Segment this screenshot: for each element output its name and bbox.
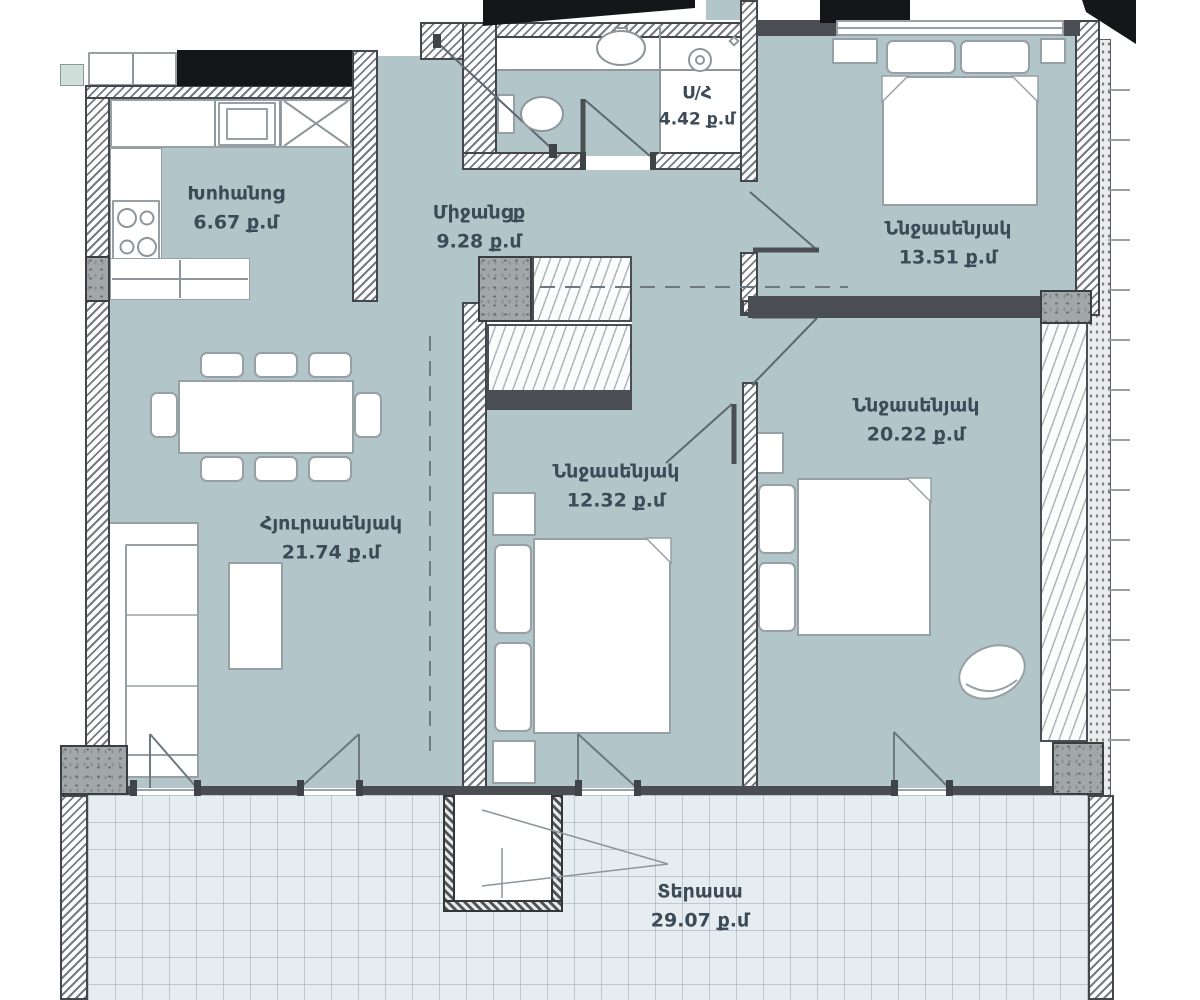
dining-chair <box>150 392 178 438</box>
room-label-terrace: Տերասա 29.07 ք.մ <box>651 878 749 935</box>
window-behind-bed <box>836 20 1064 36</box>
wall <box>462 302 487 788</box>
wall <box>462 152 583 170</box>
dining-chair <box>200 456 244 482</box>
concrete-column <box>85 256 110 302</box>
wall <box>740 0 758 182</box>
kitchen-stove <box>112 200 160 262</box>
room-area: 13.51 ք.մ <box>884 243 1011 272</box>
kitchen-counter-bottom <box>110 258 250 300</box>
room-name: Ննջասենյակ <box>552 458 679 487</box>
nightstand <box>1040 38 1066 64</box>
planter-wall <box>443 900 563 912</box>
kitchen-sink-inner <box>226 108 268 140</box>
room-name: Ննջասենյակ <box>852 392 979 421</box>
room-name: Խոհանոց <box>187 180 284 209</box>
nightstand <box>832 38 878 64</box>
bed-pillow <box>758 484 796 554</box>
facade-tick-marks <box>1108 90 1130 740</box>
room-name: Ս/Հ <box>659 82 735 108</box>
dining-chair <box>254 352 298 378</box>
wardrobe-band <box>1040 322 1088 742</box>
wall <box>60 795 88 1000</box>
wall <box>462 22 497 170</box>
wall <box>748 296 1048 318</box>
wall <box>487 392 632 410</box>
wall <box>177 50 352 86</box>
terrace-floor <box>88 795 1092 1000</box>
wall <box>85 85 360 99</box>
room-label-corridor: Միջանցք 9.28 ք.մ <box>433 199 525 256</box>
dining-chair <box>200 352 244 378</box>
wall <box>352 50 378 302</box>
nightstand <box>492 740 536 784</box>
room-name: Միջանցք <box>433 199 525 228</box>
room-label-bedroom-top: Ննջասենյակ 13.51 ք.մ <box>884 215 1011 272</box>
planter-wall <box>443 795 455 912</box>
room-label-bedroom-middle: Ննջասենյակ 12.32 ք.մ <box>552 458 679 515</box>
planter-interior <box>455 795 551 902</box>
wall <box>742 382 758 788</box>
room-name: Հյուրասենյակ <box>260 510 402 539</box>
bed-right <box>797 478 931 636</box>
duct-block <box>706 0 744 20</box>
wall <box>1075 20 1100 316</box>
wall <box>420 22 465 60</box>
floor-plan: Խոհանոց 6.67 ք.մ Միջանցք 9.28 ք.մ Ս/Հ 4.… <box>0 0 1200 1000</box>
bed-top <box>882 76 1038 206</box>
toilet-tank <box>497 94 515 134</box>
room-label-bathroom: Ս/Հ 4.42 ք.մ <box>659 82 735 133</box>
wall <box>197 786 300 795</box>
room-name: Տերասա <box>651 878 749 907</box>
bed-pillow <box>960 40 1030 74</box>
upper-cabinets <box>88 52 177 86</box>
dining-chair <box>308 352 352 378</box>
room-area: 20.22 ք.մ <box>852 420 979 449</box>
room-label-living-room: Հյուրասենյակ 21.74 ք.մ <box>260 510 402 567</box>
bed-pillow <box>886 40 956 74</box>
wall <box>359 786 578 795</box>
kitchen-fridge <box>280 99 352 148</box>
nightstand <box>492 492 536 536</box>
room-area: 9.28 ք.մ <box>433 227 525 256</box>
bed-middle <box>533 538 671 734</box>
room-label-kitchen: Խոհանոց 6.67 ք.մ <box>187 180 284 237</box>
balcony-slab <box>60 64 84 86</box>
bed-pillow <box>494 544 532 634</box>
dining-chair <box>254 456 298 482</box>
dining-chair <box>308 456 352 482</box>
room-area: 4.42 ք.մ <box>659 107 735 133</box>
wall <box>462 22 758 38</box>
concrete-column <box>1040 290 1092 324</box>
room-label-bedroom-right: Ննջասենյակ 20.22 ք.մ <box>852 392 979 449</box>
wall <box>637 786 894 795</box>
room-area: 6.67 ք.մ <box>187 208 284 237</box>
room-area: 21.74 ք.մ <box>260 538 402 567</box>
dining-chair <box>354 392 382 438</box>
bed-pillow <box>494 642 532 732</box>
bed-pillow <box>758 562 796 632</box>
room-name: Ննջասենյակ <box>884 215 1011 244</box>
wall <box>85 85 110 790</box>
vent-shaft <box>487 324 632 392</box>
dining-table <box>178 380 354 454</box>
concrete-column <box>1052 742 1104 795</box>
bathroom-floor-blue <box>497 70 660 156</box>
wall <box>1088 795 1114 1000</box>
coffee-table <box>228 562 283 670</box>
room-area: 29.07 ք.մ <box>651 906 749 935</box>
concrete-column <box>478 256 532 322</box>
vent-shaft <box>532 256 632 322</box>
room-area: 12.32 ք.մ <box>552 486 679 515</box>
sofa-seat <box>125 544 199 756</box>
concrete-column <box>60 745 128 795</box>
planter-wall <box>551 795 563 912</box>
